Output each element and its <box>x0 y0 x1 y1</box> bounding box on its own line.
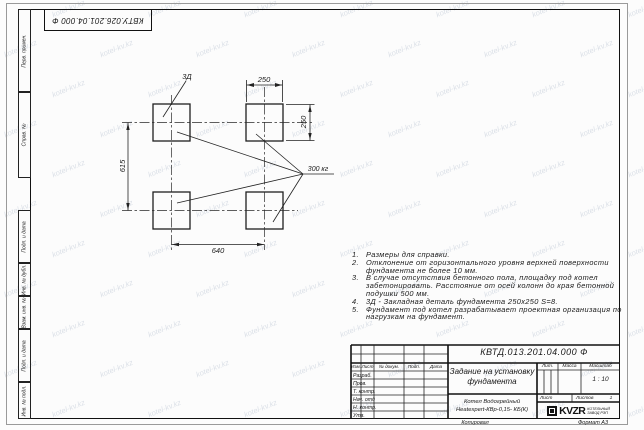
sig-row-tkontr: Т. контр. <box>353 389 375 395</box>
note-item: 5. Фундамент под котел разрабатывает про… <box>352 306 624 322</box>
watermark-text: kotel-kv.kz <box>627 158 644 179</box>
margin-box-podp-data-1: Подп. и дата <box>18 210 31 263</box>
footer-format: Формат А3 <box>558 420 628 426</box>
scale-label: Масштаб <box>581 364 620 369</box>
watermark-text: kotel-kv.kz <box>627 318 644 339</box>
col-izm: Изм. <box>351 364 361 369</box>
footer-copied-by: Копировал <box>440 420 510 426</box>
company-logo-icon <box>547 406 557 416</box>
company-tagline-line2: ЗАВОД РЭП <box>587 411 610 415</box>
drawing-sheet: kotel-kv.kzkotel-kv.kzkotel-kv.kzkotel-k… <box>0 0 644 430</box>
margin-label: Взам. инв. № <box>22 297 28 328</box>
note-item: 2. Отклонение от горизонтального уровня … <box>352 259 624 275</box>
mass-label: Масса <box>558 364 581 369</box>
watermark-text: kotel-kv.kz <box>627 0 644 19</box>
drawing-title: Задание на установку фундамента <box>449 367 535 387</box>
drawing-frame <box>30 9 620 419</box>
note-number: 2. <box>352 259 366 275</box>
scale-value: 1 : 10 <box>581 376 620 383</box>
sheets-label: Листов <box>576 396 593 401</box>
lit-label: Лит. <box>537 364 558 369</box>
note-item: 3. В случае отсутствия бетонного пола, п… <box>352 274 624 297</box>
watermark-text: kotel-kv.kz <box>627 78 644 99</box>
sig-row-utv: Утв. <box>353 413 365 419</box>
company-logo-text: KVZR <box>559 405 585 417</box>
notes-list: 1. Размеры для справки. 2. Отклонение от… <box>352 251 624 321</box>
margin-box-perv-primen: Перв. примен. <box>18 9 31 92</box>
sig-row-nkontr: Н. контр. <box>353 405 376 411</box>
sig-row-nachotd: Нач. отд <box>353 397 375 403</box>
note-number: 5. <box>352 306 366 322</box>
watermark-text: kotel-kv.kz <box>627 398 644 419</box>
product-name-line1: Котел Водогрейный <box>449 399 535 407</box>
sig-row-razrab: Разраб. <box>353 373 372 379</box>
rotated-designation-stamp: КВТУ.026.201.04.000 Ф <box>44 9 152 31</box>
note-number: 3. <box>352 274 366 297</box>
margin-label: Справ. № <box>22 124 28 147</box>
margin-label: Подп. и дата <box>22 340 28 371</box>
note-text: нагрузкам на фундамент. <box>366 313 622 321</box>
margin-box-vzam-inv: Взам. инв. № <box>18 296 31 329</box>
document-designation: КВТД.013.201.04.000 Ф <box>448 347 620 357</box>
margin-box-sprav-no: Справ. № <box>18 92 31 178</box>
product-name-line2: Heatexpert-КВр-0,15- КБ(К) <box>449 407 535 415</box>
margin-box-inv-podl: Инв. № подл. <box>18 382 31 419</box>
watermark-text: kotel-kv.kz <box>627 238 644 259</box>
rotated-designation-text: КВТУ.026.201.04.000 Ф <box>52 16 144 25</box>
margin-label: Инв. № дубл. <box>22 264 28 295</box>
margin-label: Инв. № подл. <box>22 385 28 416</box>
col-data: Дата <box>424 364 448 369</box>
sheet-label: Лист <box>540 396 552 401</box>
margin-label: Подп. и дата <box>22 221 28 252</box>
margin-label: Перв. примен. <box>22 34 28 67</box>
margin-box-inv-dubl: Инв. № дубл. <box>18 263 31 296</box>
col-podp: Подп. <box>404 364 424 369</box>
col-list: Лист <box>361 364 374 369</box>
margin-box-podp-data-2: Подп. и дата <box>18 329 31 382</box>
sig-row-prov: Пров. <box>353 381 367 387</box>
company-cell: KVZR КОТЕЛЬНЫЙ ЗАВОД РЭП <box>537 402 620 419</box>
col-dokum: № докум. <box>374 364 404 369</box>
sheets-value: 1 <box>604 396 618 401</box>
